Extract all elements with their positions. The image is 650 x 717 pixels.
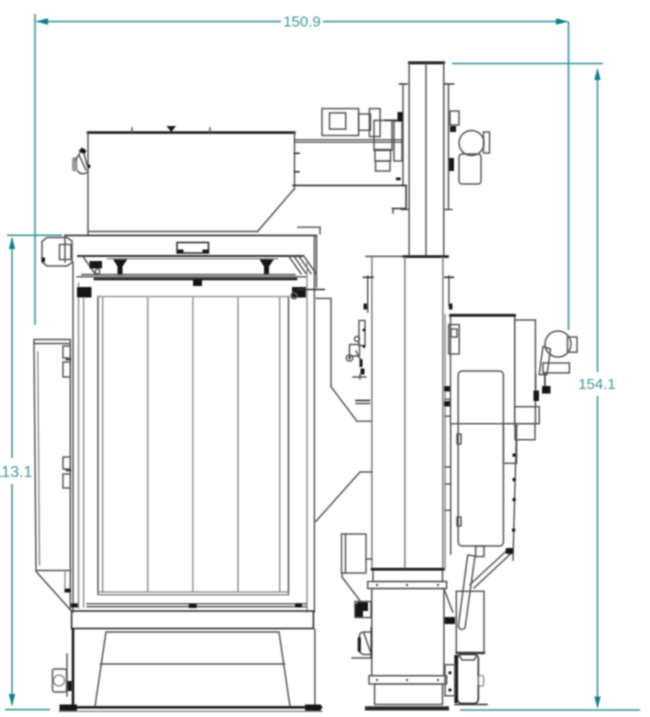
svg-text:113.1: 113.1 xyxy=(0,464,33,481)
svg-text:150.9: 150.9 xyxy=(283,14,321,31)
svg-text:154.1: 154.1 xyxy=(578,376,616,393)
